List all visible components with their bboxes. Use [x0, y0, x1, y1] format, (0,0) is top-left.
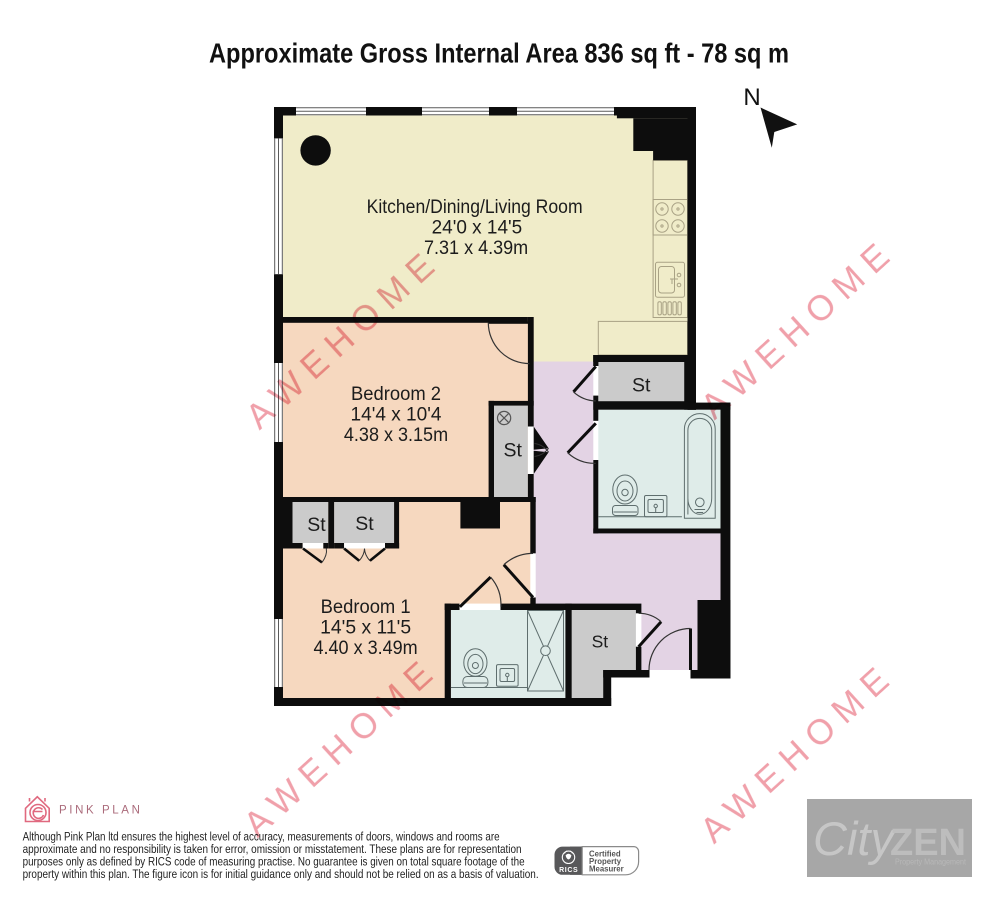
svg-text:St: St [307, 514, 326, 536]
svg-text:City: City [813, 812, 896, 865]
svg-text:14'5 x 11'5: 14'5 x 11'5 [320, 617, 411, 639]
svg-text:14'4 x 10'4: 14'4 x 10'4 [351, 404, 442, 426]
svg-text:St: St [355, 513, 374, 535]
svg-text:7.31 x 4.39m: 7.31 x 4.39m [424, 237, 528, 259]
svg-text:RICS: RICS [559, 867, 578, 874]
svg-text:4.40 x 3.49m: 4.40 x 3.49m [314, 637, 418, 659]
svg-text:St: St [632, 374, 651, 396]
svg-text:Bedroom 1: Bedroom 1 [321, 596, 411, 618]
svg-text:St: St [503, 439, 522, 461]
svg-text:Measurer: Measurer [589, 865, 624, 874]
svg-text:4.38 x 3.15m: 4.38 x 3.15m [344, 424, 448, 446]
svg-text:St: St [592, 632, 609, 652]
svg-text:Bedroom 2: Bedroom 2 [351, 383, 441, 405]
svg-text:N: N [743, 84, 760, 111]
svg-text:24'0 x 14'5: 24'0 x 14'5 [432, 217, 523, 239]
svg-text:Property Management: Property Management [895, 858, 967, 867]
svg-text:Kitchen/Dining/Living Room: Kitchen/Dining/Living Room [367, 196, 583, 218]
svg-text:Approximate Gross Internal Are: Approximate Gross Internal Area 836 sq f… [209, 38, 789, 69]
svg-text:property within this plan. The: property within this plan. The figure ic… [23, 867, 539, 881]
svg-text:PINK PLAN: PINK PLAN [59, 805, 142, 817]
